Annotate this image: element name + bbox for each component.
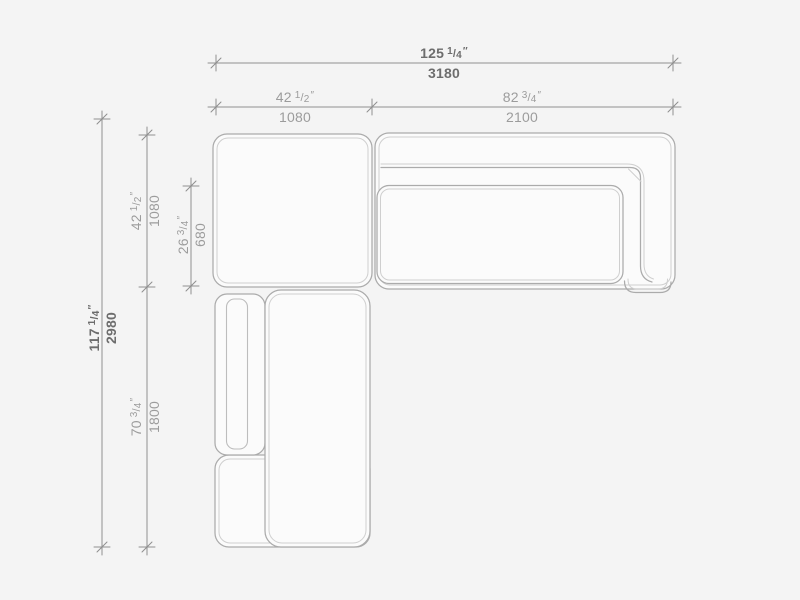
dim-value-whole: 117: [86, 328, 102, 351]
fraction-slash: /: [131, 408, 143, 411]
dim-overall-width-mm: 3180: [384, 65, 504, 81]
fraction-denominator: 4: [456, 50, 462, 61]
fraction-numerator: 1: [129, 206, 140, 212]
dim-chaise-depth-mm: 1800: [146, 357, 162, 477]
dim-seat-depth-mm: 680: [192, 175, 208, 295]
fraction-denominator: 2: [304, 94, 310, 105]
fraction-slash: /: [131, 202, 143, 205]
dim-value-whole: 42: [276, 89, 292, 105]
fraction-numerator: 3: [129, 412, 140, 418]
inch-mark: ″: [311, 90, 315, 101]
dim-upper-module-depth-mm: 1080: [146, 151, 162, 271]
dimension-lines: [94, 55, 681, 555]
inch-mark: ″: [176, 216, 187, 220]
dim-right-module-width-inches: 823/4″: [462, 88, 582, 104]
fraction-numerator: 3: [176, 230, 187, 236]
dim-value-whole: 70: [128, 420, 144, 436]
dim-value-whole: 26: [175, 238, 191, 254]
dim-overall-depth-mm: 2980: [103, 268, 119, 388]
sectional-sofa-drawing: [213, 133, 675, 547]
inch-mark: ″: [87, 305, 98, 310]
dim-upper-module-depth-inches: 421/2″: [127, 151, 143, 271]
inch-mark: ″: [538, 90, 542, 101]
fraction-slash: /: [178, 226, 190, 229]
dim-value-whole: 125: [420, 45, 444, 61]
fraction-denominator: 4: [133, 402, 144, 408]
dim-overall-width-inches: 1251/4″: [384, 44, 504, 60]
dim-chaise-depth-inches: 703/4″: [127, 357, 143, 477]
chaise-backrest-cushion: [227, 299, 248, 449]
dim-left-module-width-inches: 421/2″: [235, 88, 355, 104]
dim-left-module-width-mm: 1080: [235, 109, 355, 125]
fraction-denominator: 4: [91, 311, 102, 317]
fraction-denominator: 2: [133, 196, 144, 202]
fraction-denominator: 4: [531, 94, 537, 105]
sofa-seat-cushion-outline: [377, 186, 623, 284]
chaise-seat-outline: [265, 290, 370, 547]
inch-mark: ″: [129, 192, 140, 196]
dim-value-whole: 42: [128, 214, 144, 230]
inch-mark: ″: [463, 46, 468, 57]
dim-seat-depth-inches: 263/4″: [174, 175, 190, 295]
dim-overall-depth-inches: 1171/4″: [85, 268, 101, 388]
fraction-numerator: 1: [87, 320, 98, 326]
sofa-dimension-diagram: 1251/4″ 3180 421/2″ 1080 823/4″ 2100 117…: [0, 0, 800, 600]
dim-right-module-width-mm: 2100: [462, 109, 582, 125]
ottoman-module-outline: [213, 134, 372, 287]
fraction-slash: /: [89, 316, 101, 319]
diagram-canvas: [0, 0, 800, 600]
dim-value-whole: 82: [503, 89, 519, 105]
fraction-denominator: 4: [180, 220, 191, 226]
inch-mark: ″: [129, 398, 140, 402]
